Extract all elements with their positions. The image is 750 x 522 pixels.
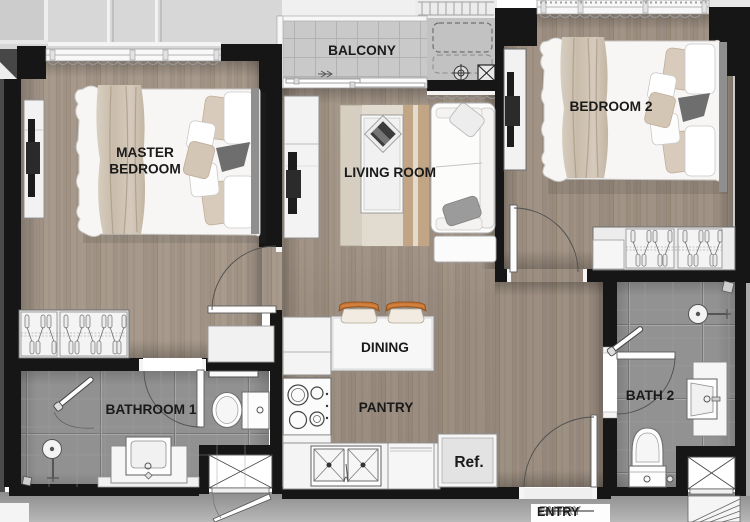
svg-text:LIVING ROOM: LIVING ROOM xyxy=(344,165,436,180)
svg-text:Ref.: Ref. xyxy=(454,454,483,471)
svg-text:PANTRY: PANTRY xyxy=(359,400,414,415)
svg-text:BEDROOM 2: BEDROOM 2 xyxy=(570,99,653,114)
svg-text:BATHROOM 1: BATHROOM 1 xyxy=(106,402,197,417)
svg-text:MASTER: MASTER xyxy=(116,145,174,160)
svg-text:DINING: DINING xyxy=(361,340,409,355)
svg-text:BEDROOM: BEDROOM xyxy=(109,162,180,177)
svg-text:BALCONY: BALCONY xyxy=(328,43,396,58)
svg-text:BATH 2: BATH 2 xyxy=(626,388,675,403)
